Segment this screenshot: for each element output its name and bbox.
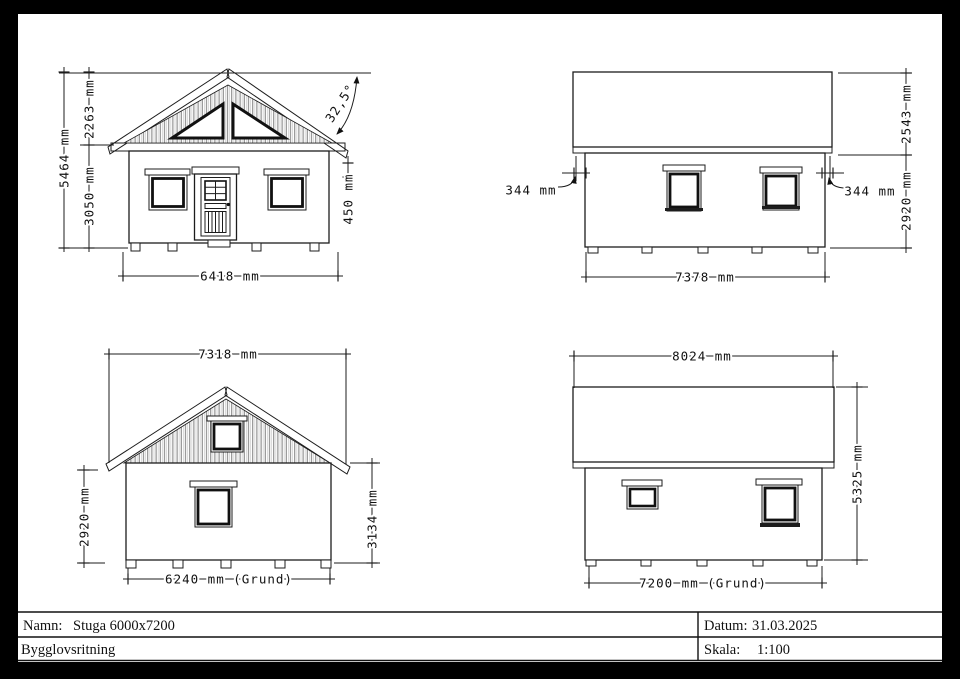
door-handle <box>227 203 230 206</box>
dim-side-right-wall-height: 2920 mm <box>899 171 914 231</box>
dim-front-wall-height: 3050 mm <box>82 166 97 226</box>
title-name-value: Stuga 6000x7200 <box>73 618 175 634</box>
side-left-window-2 <box>756 479 802 527</box>
drawing-sheet: 5464 mm 2263 mm 3050 mm 6418 mm 450 mm 3… <box>0 0 960 679</box>
dim-side-right-roof-height: 2543 mm <box>899 84 914 144</box>
dim-side-right-overhang-right: 344 mm <box>844 184 895 199</box>
dim-front-eave-drop: 450 mm <box>341 173 356 224</box>
dim-side-right-overhang-left: 344 mm <box>505 183 556 198</box>
dim-rear-wall-height: 2920 mm <box>77 487 92 547</box>
title-date-value: 31.03.2025 <box>752 618 817 634</box>
blueprint-svg: 5464 mm 2263 mm 3050 mm 6418 mm 450 mm 3… <box>0 0 960 679</box>
dim-rear-width: 7318 mm <box>198 347 258 362</box>
title-scale-value: 1:100 <box>757 642 790 658</box>
side-left-window-1 <box>622 480 662 509</box>
dim-side-left-foundation-width: 7200 mm (Grund) <box>639 576 767 591</box>
side-right-window-2 <box>760 167 802 210</box>
front-door <box>192 167 239 240</box>
dim-side-right-width: 7378 mm <box>675 270 735 285</box>
front-window-left <box>145 169 190 210</box>
title-scale-label: Skala: <box>704 642 740 658</box>
door-step <box>208 240 230 247</box>
dim-rear-foundation-width: 6240 mm (Grund) <box>165 572 293 587</box>
dim-front-gable-height: 2263 mm <box>82 79 97 139</box>
title-name-label: Namn: <box>23 618 62 634</box>
dim-front-width: 6418 mm <box>200 269 260 284</box>
paper <box>18 14 942 662</box>
dim-rear-total-height: 3134 mm <box>365 489 380 549</box>
front-window-right <box>264 169 309 210</box>
dim-side-left-width: 8024 mm <box>672 349 732 364</box>
dim-front-total-height: 5464 mm <box>57 128 72 188</box>
title-date-label: Datum: <box>704 618 748 634</box>
title-document-type: Bygglovsritning <box>21 642 115 658</box>
dim-side-left-total-height: 5325 mm <box>850 444 865 504</box>
rear-gable-window <box>207 416 247 452</box>
rear-window <box>190 481 237 527</box>
side-right-window-1 <box>663 165 705 211</box>
